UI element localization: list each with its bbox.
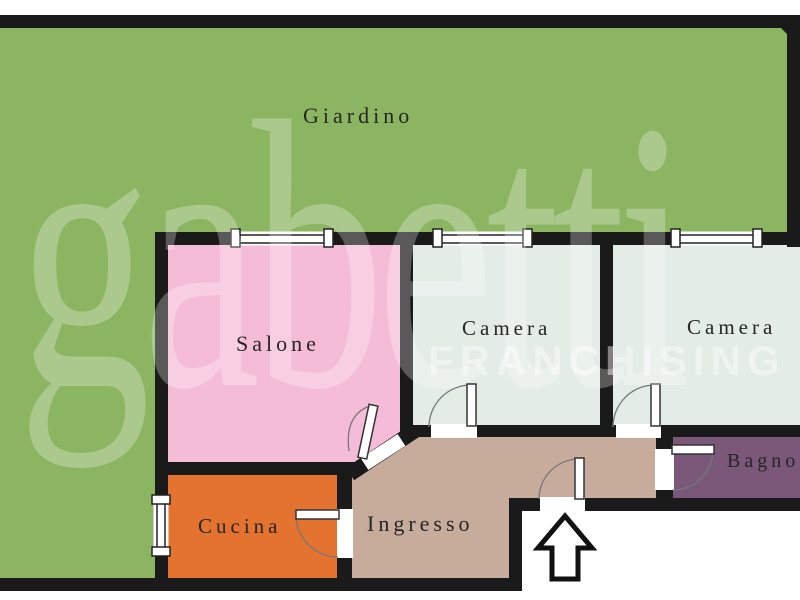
floorplan-stage: gabetti FRANCHISING Giardino Salone Came… <box>0 0 800 600</box>
window-camera-1 <box>433 229 532 247</box>
room-label-camera-1: Camera <box>462 316 551 341</box>
room-label-ingresso: Ingresso <box>367 511 474 537</box>
wall-garden-right <box>787 15 800 247</box>
floorplan-drawing <box>0 0 800 600</box>
window-camera-2 <box>671 229 762 247</box>
window-salone <box>231 229 333 247</box>
wall-salone-right <box>400 232 413 435</box>
room-label-cucina: Cucina <box>198 514 281 539</box>
room-label-salone: Salone <box>236 331 320 357</box>
wall-camera-divider <box>600 232 613 437</box>
room-label-bagno: Bagno <box>727 450 799 473</box>
wall-top <box>0 15 800 28</box>
wall-salone-cucina <box>155 462 362 475</box>
wall-bottom-left <box>0 578 522 591</box>
wall-entry-notch <box>509 498 522 591</box>
window-cucina <box>152 495 170 556</box>
room-label-giardino: Giardino <box>303 103 413 129</box>
room-label-camera-2: Camera <box>687 315 776 340</box>
